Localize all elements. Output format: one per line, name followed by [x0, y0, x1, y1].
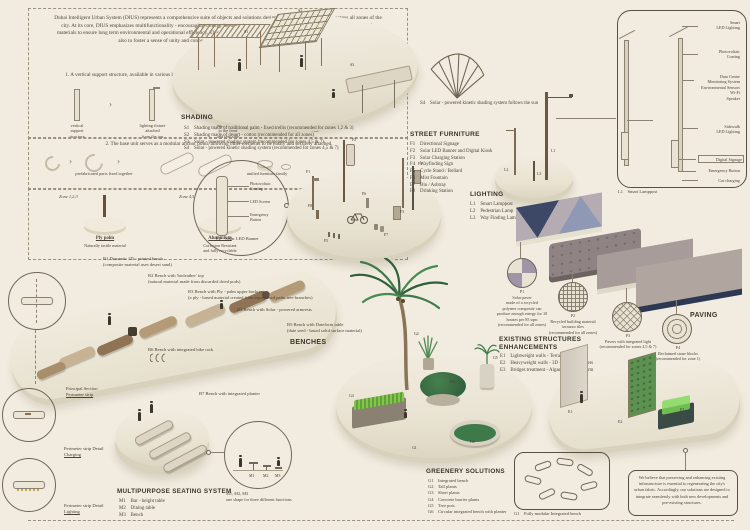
paver-detail-p4 [662, 314, 692, 344]
multipurpose-tag: M2 [263, 474, 268, 478]
greenery-tag: G4 [349, 394, 354, 398]
lamppost-label-sidewalk: Sidewalk LED Lighting [700, 124, 740, 135]
existing-tag: E3 [680, 408, 684, 412]
modular-bench-box [514, 452, 610, 510]
drinking-station-icon [316, 210, 319, 219]
cube-post [279, 43, 280, 72]
greenery-list: G1 Integrated bench G2 Tall plants G3 Sh… [428, 478, 506, 515]
canopy-post [394, 80, 395, 108]
lamppost-label-pv: Photovoltaic Coating [700, 49, 740, 60]
lighting-item: L1 Smart Lamppost [470, 202, 518, 209]
lamppost-label-signage: Digital Signage [698, 155, 744, 163]
leader-line [572, 274, 573, 282]
greenery-title: GREENERY SOLUTIONS [426, 468, 505, 475]
strip-profile-icon [13, 481, 45, 489]
existing-tag: E1 [568, 410, 572, 414]
support-structure-icon [74, 89, 80, 121]
cube-post [305, 41, 306, 70]
person-figure [580, 394, 583, 403]
banner-label-led: LED Screen [250, 199, 284, 204]
paver-detail-p1 [507, 258, 537, 288]
furniture-item: F5 Cycle Stand / Bollard [410, 169, 492, 176]
furniture-tag: F2 [352, 138, 356, 142]
furniture-item: F3 Solar Charging Station [410, 156, 492, 163]
potted-palm-icon [474, 344, 500, 366]
lamppost-caption: L1 Smart Lamppost [618, 189, 657, 195]
furniture-item: F7 Bin / Ashtray [410, 183, 492, 190]
banner-panel [346, 144, 355, 166]
small-ring-icon [281, 164, 291, 170]
shading-tag: S3 [350, 63, 354, 67]
wayfinding-lamp-pole [533, 161, 535, 181]
tall-pot [480, 364, 494, 388]
paver-detail-p3 [612, 302, 642, 332]
paving-slab-solar [516, 192, 602, 241]
lighting-tag: L3 [537, 172, 541, 176]
existing-tag: E2 [618, 420, 622, 424]
shading-tag: S2 [298, 9, 302, 13]
pedestrian-lamp-pole [514, 128, 516, 175]
arrow-icon: › [109, 99, 112, 109]
charging-line2: Charging [64, 452, 104, 458]
greenery-tag: G1 [412, 446, 417, 450]
greenery-tag: G3 [450, 380, 455, 384]
shading-title: SHADING [181, 114, 213, 121]
arrow-icon: › [117, 156, 120, 166]
person-figure [150, 404, 153, 413]
ground-line [233, 470, 283, 471]
bench-label-b3: B3 Bench with Ply - palm upper backrest … [188, 289, 318, 301]
pergola-post [246, 36, 247, 69]
multipurpose-detail-circle: M1 M2 M3 [224, 421, 292, 489]
lighting-fixture-pole-icon [149, 89, 155, 121]
shading-item: S3 Solar - powered shading system (recom… [184, 140, 354, 147]
benches-title: BENCHES [290, 339, 326, 346]
banner-pole [343, 140, 345, 202]
multipurpose-note: M1, M2, M3 one shape for three different… [226, 491, 301, 503]
leader-line [682, 128, 698, 129]
multipurpose-tag: M1 [249, 474, 254, 478]
material-name: Ply palm [75, 236, 135, 241]
material-desc: Naturally tactile material [69, 243, 141, 248]
shading-list: S1 Shading made of traditional palm - fi… [184, 126, 354, 153]
lamppost-label-data: Data Centre Monitoring System Environmen… [694, 74, 740, 101]
slab-triangle [559, 192, 602, 234]
person-figure [404, 412, 407, 418]
lighting-detail-circle [2, 458, 56, 512]
lighting-detail-label: Perimeter strip Detail Lighting [64, 503, 104, 515]
multipurpose-title: MULTIPURPOSE SEATING SYSTEM [117, 488, 232, 495]
paving-title: PAVING [690, 312, 718, 319]
banner-label-emergency: Emergency Button [250, 212, 284, 222]
leader-line [35, 330, 37, 384]
pergola-post [198, 37, 199, 70]
furniture-tag: F1 [306, 170, 310, 174]
modular-bench-caption: G1 Fully modular Integrated bench [514, 511, 581, 517]
leader-line [227, 216, 249, 217]
lamppost-label-smart-led: Smart LED Lighting [700, 20, 740, 31]
leader-line [227, 201, 249, 202]
bar-table-leg [253, 463, 254, 470]
furniture-tag: F7 [384, 233, 388, 237]
slab-triangle [516, 200, 559, 242]
zone-label: Zone 1,2,3 [59, 194, 78, 199]
lamppost-panel [671, 140, 679, 168]
shading-item: S1 Shading made of traditional palm - fi… [184, 126, 354, 133]
bollard-icon [328, 232, 330, 237]
furniture-tag: F3 [400, 210, 404, 214]
plant-pot [423, 358, 434, 370]
leader-line [556, 118, 616, 119]
principal-line2: Perimeter strip [66, 392, 98, 398]
bin-icon [374, 224, 378, 230]
person-figure [300, 58, 303, 67]
signage-flag [313, 178, 319, 181]
lighting-title: LIGHTING [470, 191, 503, 198]
zone-label: Zone 4,5 [179, 194, 194, 199]
multipurpose-item: M1 Bar - height table [119, 499, 165, 506]
street-furniture-title: STREET FURNITURE [410, 131, 480, 138]
paver-detail-p2 [558, 282, 588, 312]
leader-line [682, 171, 696, 172]
bottom-rule [28, 520, 734, 521]
planter-box [128, 327, 137, 336]
existing-title-line1: EXISTING STRUCTURES [499, 336, 581, 344]
spiky-plant-icon [416, 334, 440, 360]
pergola-post [214, 33, 215, 67]
s4-caption: S4 Solar - powered kinetic shading syste… [420, 101, 538, 108]
person-figure [239, 458, 242, 467]
person-figure [138, 412, 141, 421]
cube-post [321, 38, 322, 66]
street-furniture-list: F1 Directional Signage F2 Solar LED Bann… [410, 142, 492, 196]
bench-label-b6: B6 Bench with integrated bike rack [148, 347, 248, 353]
charging-coil-icon [25, 413, 31, 415]
lamp-head [569, 94, 573, 97]
bench-label-b2: B2 Bench with 'bioleather' top (natural … [148, 273, 258, 285]
lamppost-label-emergency: Emergency Button [698, 168, 740, 173]
lighting-tag: L1 [551, 149, 555, 153]
lighting-tag: L2 [504, 168, 508, 172]
terracotta-wall [560, 344, 588, 408]
bench-label-b7: B7 Bench with integrated planter [199, 391, 299, 397]
arrow-icon: › [69, 156, 72, 166]
modular-bench-ring-icon [515, 453, 609, 509]
paving-note-p2: P2 Recycled building material terrazzo t… [534, 313, 612, 335]
bench-label-b1: B1 Domestic 3D - printed bench (composit… [103, 256, 193, 268]
furniture-tag: F8 [308, 204, 312, 208]
pergola-post [260, 31, 261, 65]
lamppost-panel [621, 132, 629, 160]
green-wall [628, 352, 656, 418]
lamppost-arm [547, 97, 572, 98]
bench-label-b4: B4 Bench with Solar - powered armrests [237, 307, 347, 313]
furniture-tag: F5 [324, 239, 328, 243]
strip-lighting-icon [17, 489, 39, 491]
lighting-line2: Lighting [64, 509, 104, 515]
kiosk-totem [402, 158, 404, 208]
leader-line [682, 180, 698, 181]
leader-line [676, 300, 677, 314]
lighting-item: L2 Pedestrian Lamp [470, 209, 518, 216]
leader-line [227, 186, 249, 187]
leader-line [520, 242, 521, 258]
greenery-tag: G6 [470, 440, 475, 444]
leader-line [678, 159, 696, 160]
belief-text: We believe that preserving and enhancing… [634, 475, 730, 506]
principal-section-circle [8, 272, 66, 330]
shading-item: S4 Solar - powered kinetic shading syste… [184, 146, 354, 153]
leader-line [682, 80, 694, 81]
greenery-tag: G2 [414, 332, 419, 336]
bench-icon [275, 467, 282, 469]
banner-label-pv: Photovoltaic Coating [250, 181, 284, 191]
fountain-icon [366, 198, 369, 208]
leader-line [682, 54, 698, 55]
kinetic-shading-icon [424, 52, 490, 100]
person-figure [332, 92, 335, 98]
smart-l1-pole [545, 92, 548, 180]
lamp-arm-icon [153, 87, 160, 89]
furniture-tag: F6 [362, 192, 366, 196]
circular-bench-planter [450, 420, 500, 446]
signage-pole [312, 176, 314, 210]
canopy-post [362, 85, 363, 113]
s2-label-0: prefabricated parts fixed together [31, 171, 177, 176]
belief-box: We believe that preserving and enhancing… [628, 470, 738, 516]
lamppost-label-charging: Car charging [700, 178, 740, 183]
greenery-tag: G5 [493, 356, 498, 360]
furniture-item: F6 Mist Fountain [410, 176, 492, 183]
person-figure [238, 62, 241, 71]
person-figure [108, 316, 111, 325]
multipurpose-item: M3 Bench [119, 513, 165, 520]
multipurpose-list: M1 Bar - height table M2 Dining table M3… [119, 499, 165, 519]
leader-line [682, 26, 698, 27]
ply-base-icon [84, 217, 126, 232]
leader-line [626, 288, 627, 302]
section-axis [36, 279, 38, 323]
person-figure [220, 303, 223, 309]
multipurpose-tag: M3 [275, 474, 280, 478]
lighting-item: L3 Way Finding Lamp [470, 216, 518, 223]
bollard-icon [338, 234, 340, 239]
furniture-item: F4 Wayfinding Sign [410, 162, 492, 169]
leader-line [685, 452, 686, 470]
person-figure [277, 460, 280, 466]
bollard-icon [333, 233, 335, 238]
trellis-roof-icon [189, 24, 271, 38]
banner-caption: F2 Solar LED Banner [216, 236, 259, 242]
bike-rack-icon [150, 352, 170, 362]
principal-section-label: Principal Section Perimeter strip [66, 386, 98, 398]
charging-detail-label: Perimeter strip Detail Charging [64, 446, 104, 458]
bush-bowl [426, 394, 460, 406]
lamppost-arm [506, 130, 516, 131]
greenery-item: G6 Circular integrated bench with plante… [428, 509, 506, 515]
multipurpose-item: M2 Dining table [119, 506, 165, 513]
lamppost-arm [627, 120, 653, 121]
leader-line [210, 452, 224, 453]
poster-board: Dubai Intelligent Urban System (DIUS) re… [0, 0, 750, 530]
lighting-list: L1 Smart Lamppost L2 Pedestrian Lamp L3 … [470, 202, 518, 222]
charging-detail-circle [2, 388, 56, 442]
bicycle-icon [346, 210, 370, 224]
dining-table-leg [266, 466, 267, 470]
furniture-item: F2 Solar LED Banner and Digital Kiosk [410, 149, 492, 156]
bin-icon [380, 226, 384, 232]
shading-item: S2 Shading made of desert - cotton (reco… [184, 133, 354, 140]
shading-tag: S1 [244, 30, 248, 34]
banner-shape-icon [216, 176, 228, 236]
furniture-item: F1 Directional Signage [410, 142, 492, 149]
